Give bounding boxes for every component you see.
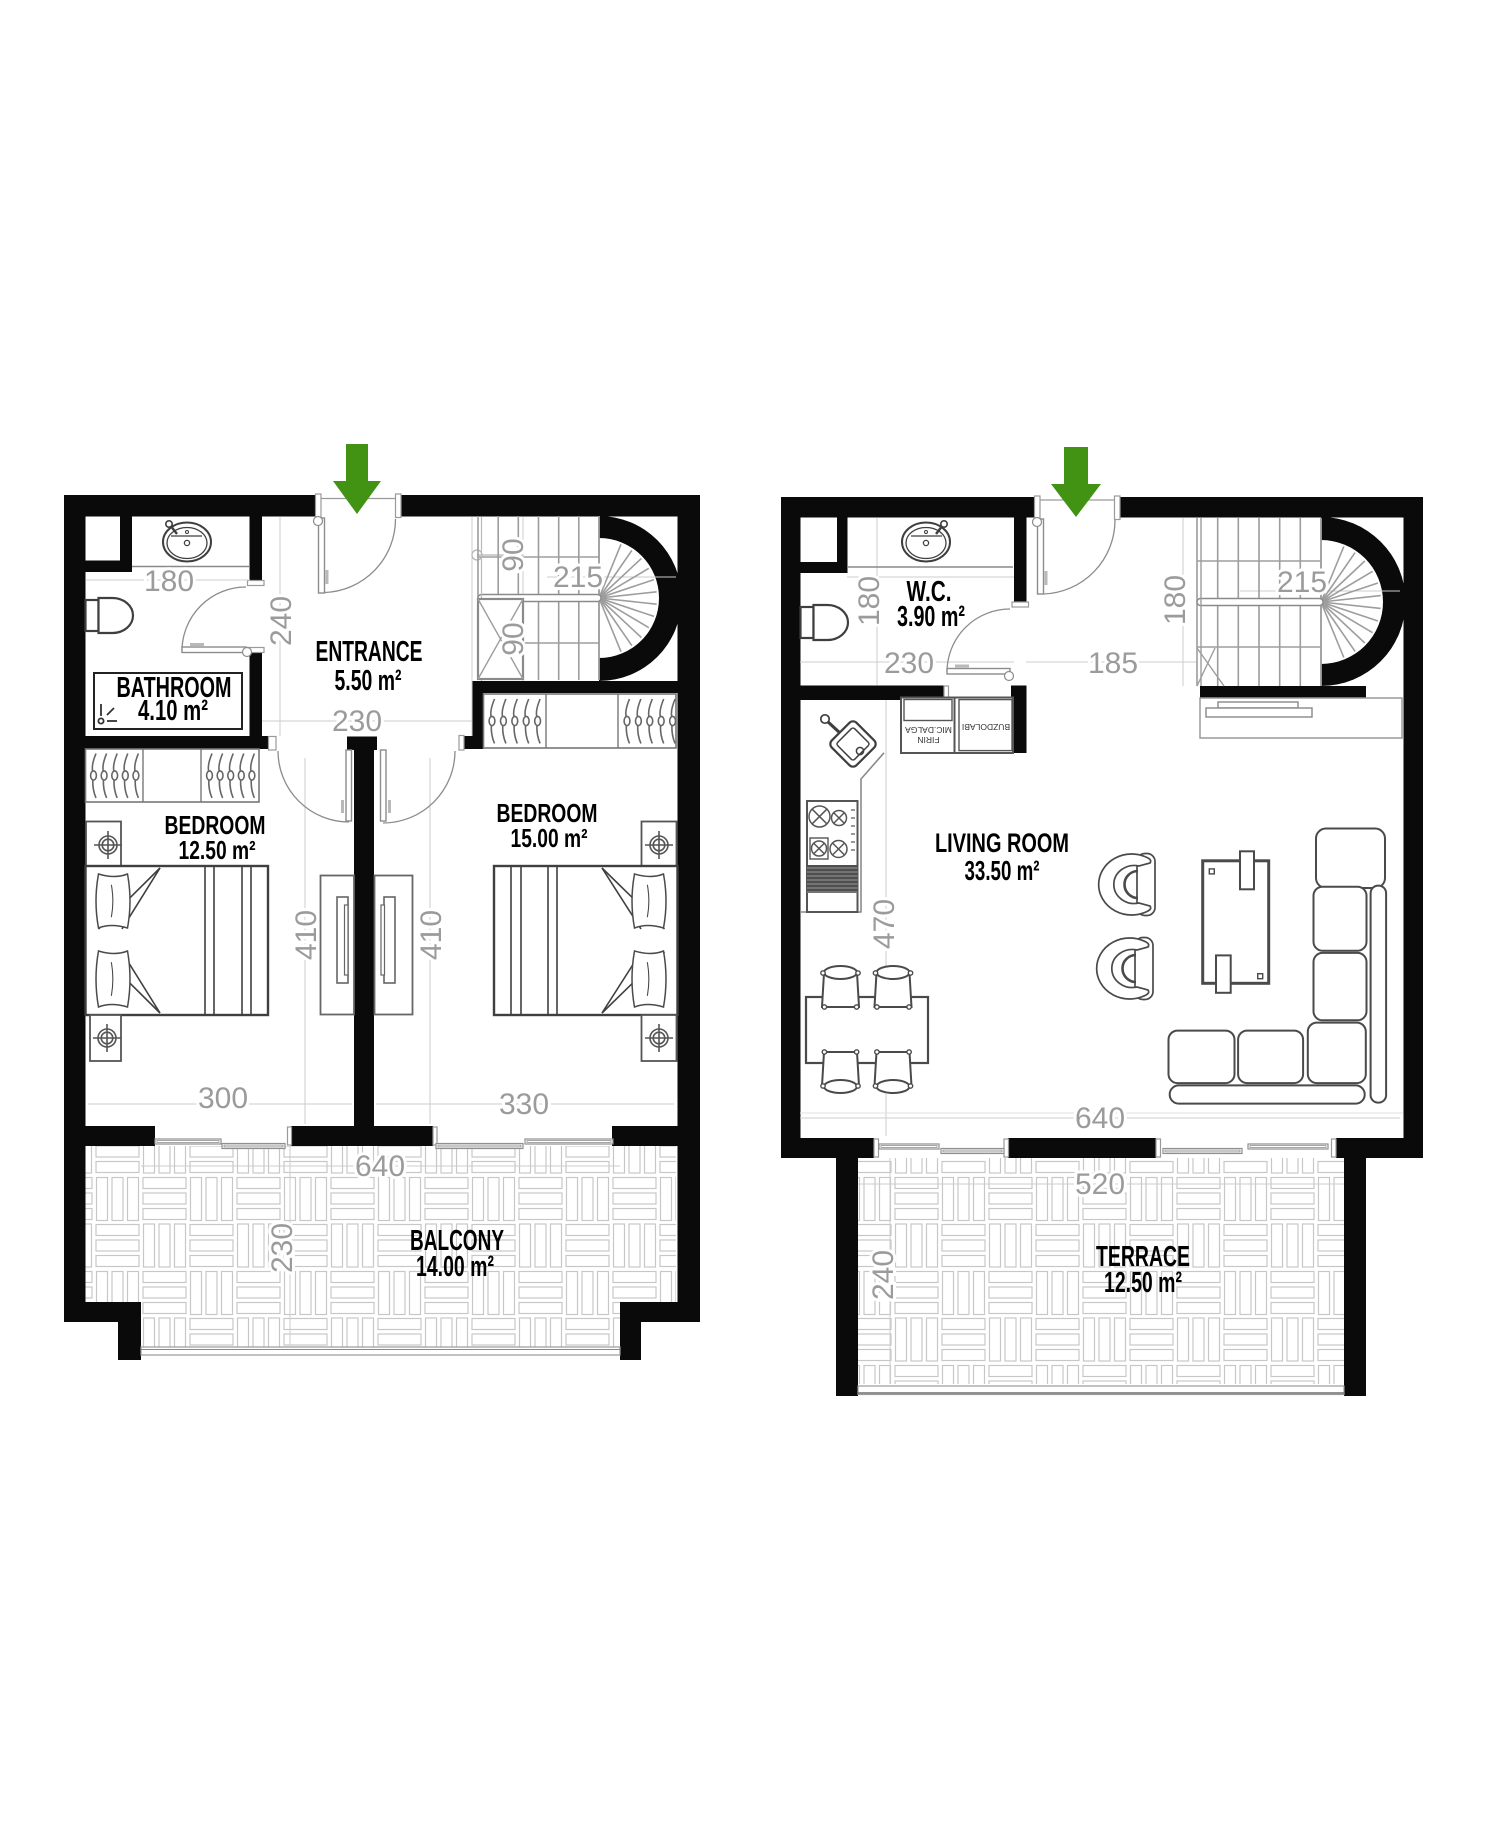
svg-text:410: 410 (290, 910, 323, 960)
svg-text:180: 180 (1159, 575, 1192, 625)
svg-text:230: 230 (332, 705, 382, 738)
svg-text:330: 330 (499, 1088, 549, 1121)
svg-text:180: 180 (144, 565, 194, 598)
svg-text:12.50 m²: 12.50 m² (179, 835, 256, 865)
svg-text:470: 470 (868, 899, 901, 949)
svg-text:240: 240 (867, 1250, 900, 1300)
svg-text:410: 410 (415, 910, 448, 960)
svg-text:520: 520 (1075, 1168, 1125, 1201)
svg-text:90: 90 (497, 622, 530, 655)
svg-text:4.10 m²: 4.10 m² (138, 695, 208, 727)
svg-text:230: 230 (266, 1223, 299, 1273)
svg-text:215: 215 (1277, 566, 1327, 599)
svg-text:FIRIN: FIRIN (917, 735, 939, 745)
svg-text:BUZDOLABI: BUZDOLABI (962, 722, 1010, 732)
svg-text:90: 90 (497, 538, 530, 571)
svg-text:300: 300 (198, 1082, 248, 1115)
svg-text:ENTRANCE: ENTRANCE (316, 636, 423, 668)
svg-text:33.50 m²: 33.50 m² (965, 855, 1040, 886)
svg-text:215: 215 (553, 561, 603, 594)
svg-text:180: 180 (853, 576, 886, 626)
svg-text:240: 240 (265, 596, 298, 646)
svg-text:640: 640 (1075, 1102, 1125, 1135)
svg-text:12.50 m²: 12.50 m² (1104, 1267, 1182, 1299)
svg-text:14.00 m²: 14.00 m² (416, 1251, 494, 1283)
svg-text:185: 185 (1088, 647, 1138, 680)
svg-text:LIVING ROOM: LIVING ROOM (935, 828, 1069, 858)
svg-text:230: 230 (884, 647, 934, 680)
svg-text:MIC.DALGA: MIC.DALGA (905, 725, 952, 735)
svg-text:640: 640 (355, 1150, 405, 1183)
svg-text:5.50 m²: 5.50 m² (335, 665, 402, 697)
svg-text:3.90 m²: 3.90 m² (897, 601, 965, 633)
svg-text:15.00 m²: 15.00 m² (511, 823, 588, 853)
